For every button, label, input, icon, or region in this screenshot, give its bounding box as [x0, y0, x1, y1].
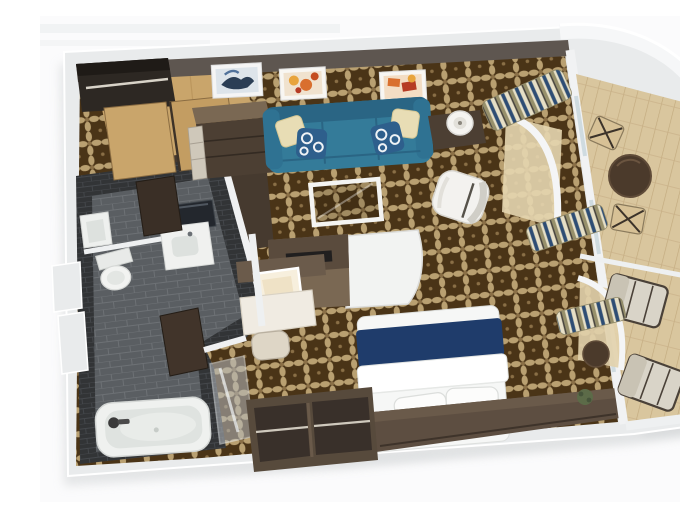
wall-art-birds — [211, 63, 263, 99]
bathroom — [76, 156, 266, 464]
balcony-dining-table — [609, 155, 651, 197]
desk-stool — [251, 330, 291, 361]
drawer-cabinet — [188, 101, 276, 180]
floorplan-render — [40, 16, 680, 502]
bathroom-door-leaf — [136, 176, 182, 236]
wardrobe — [246, 387, 378, 472]
left-wall-bump-2 — [58, 312, 88, 374]
plant — [577, 389, 593, 405]
side-table — [428, 110, 486, 150]
balcony-chair-2 — [610, 203, 646, 234]
wardrobe-bay-1 — [254, 403, 310, 462]
pillow-navy-left — [296, 128, 328, 160]
left-wall-bump — [52, 262, 82, 312]
sofa — [262, 96, 434, 174]
washbasin-small — [80, 212, 112, 248]
background-streak — [40, 24, 340, 33]
floorplan-figure — [40, 16, 680, 502]
coffee-table — [310, 179, 381, 225]
balcony-side-table — [583, 341, 609, 367]
bathtub — [94, 396, 211, 458]
wall-art-orange-1 — [279, 67, 327, 100]
